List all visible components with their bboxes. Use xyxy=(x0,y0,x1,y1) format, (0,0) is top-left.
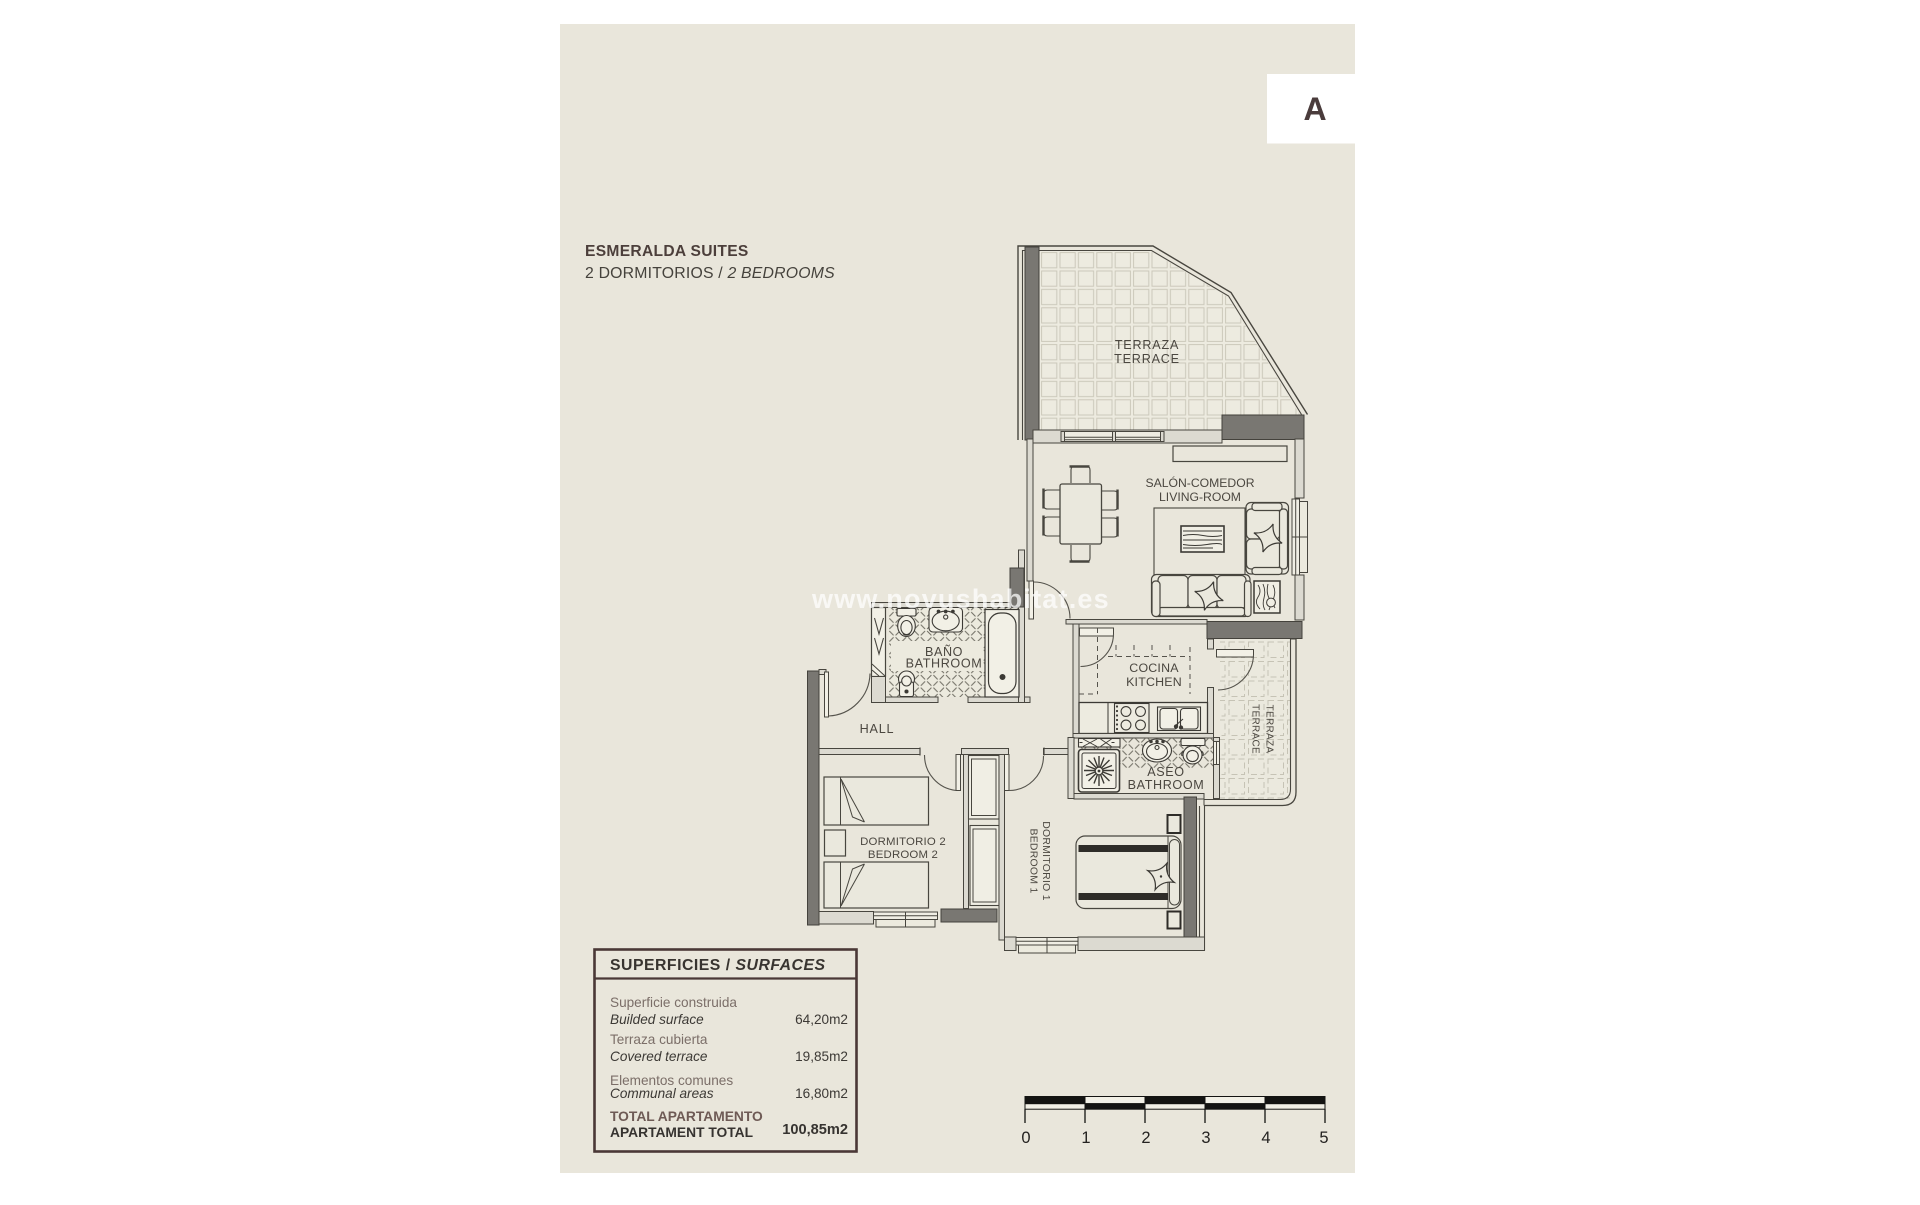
svg-text:1: 1 xyxy=(1081,1129,1090,1147)
svg-text:BEDROOM 2: BEDROOM 2 xyxy=(868,849,938,861)
svg-text:BATHROOM: BATHROOM xyxy=(1128,778,1205,792)
svg-text:SALÓN-COMEDOR: SALÓN-COMEDOR xyxy=(1145,475,1254,490)
svg-text:3: 3 xyxy=(1201,1129,1210,1147)
svg-text:19,85m2: 19,85m2 xyxy=(795,1049,848,1064)
svg-text:ESMERALDA SUITES: ESMERALDA SUITES xyxy=(585,243,749,260)
svg-text:DORMITORIO 2: DORMITORIO 2 xyxy=(860,836,946,848)
svg-text:Builded surface: Builded surface xyxy=(610,1012,704,1027)
svg-text:TERRACE: TERRACE xyxy=(1114,352,1180,366)
svg-text:DORMITORIO 1: DORMITORIO 1 xyxy=(1040,821,1051,901)
svg-text:TOTAL APARTAMENTO: TOTAL APARTAMENTO xyxy=(610,1109,763,1124)
svg-text:2 DORMITORIOS / 2 BEDROOMS: 2 DORMITORIOS / 2 BEDROOMS xyxy=(585,265,835,282)
svg-text:Terraza cubierta: Terraza cubierta xyxy=(610,1032,708,1047)
svg-text:TERRAZA: TERRAZA xyxy=(1115,338,1179,352)
svg-text:16,80m2: 16,80m2 xyxy=(795,1086,848,1101)
svg-text:TERRACE: TERRACE xyxy=(1250,704,1261,754)
svg-text:2: 2 xyxy=(1141,1129,1150,1147)
svg-text:BEDROOM 1: BEDROOM 1 xyxy=(1028,828,1039,893)
svg-text:100,85m2: 100,85m2 xyxy=(782,1122,848,1138)
svg-text:HALL: HALL xyxy=(860,722,895,736)
svg-text:SUPERFICIES / SURFACES: SUPERFICIES / SURFACES xyxy=(610,957,826,974)
svg-text:64,20m2: 64,20m2 xyxy=(795,1012,848,1027)
svg-text:TERRAZA: TERRAZA xyxy=(1264,705,1275,754)
svg-text:www.novushabitat.es: www.novushabitat.es xyxy=(811,584,1110,614)
svg-text:Superficie construida: Superficie construida xyxy=(610,995,737,1010)
svg-text:LIVING-ROOM: LIVING-ROOM xyxy=(1159,490,1241,504)
svg-text:Covered terrace: Covered terrace xyxy=(610,1049,708,1064)
svg-text:KITCHEN: KITCHEN xyxy=(1126,675,1182,689)
svg-text:BATHROOM: BATHROOM xyxy=(906,657,983,671)
svg-text:5: 5 xyxy=(1319,1129,1328,1147)
svg-text:A: A xyxy=(1303,91,1326,127)
svg-text:Communal areas: Communal areas xyxy=(610,1086,714,1101)
svg-text:ASEO: ASEO xyxy=(1147,765,1184,779)
svg-text:COCINA: COCINA xyxy=(1129,661,1179,675)
svg-text:APARTAMENT TOTAL: APARTAMENT TOTAL xyxy=(610,1125,753,1140)
svg-text:4: 4 xyxy=(1261,1129,1270,1147)
svg-text:0: 0 xyxy=(1021,1129,1030,1147)
